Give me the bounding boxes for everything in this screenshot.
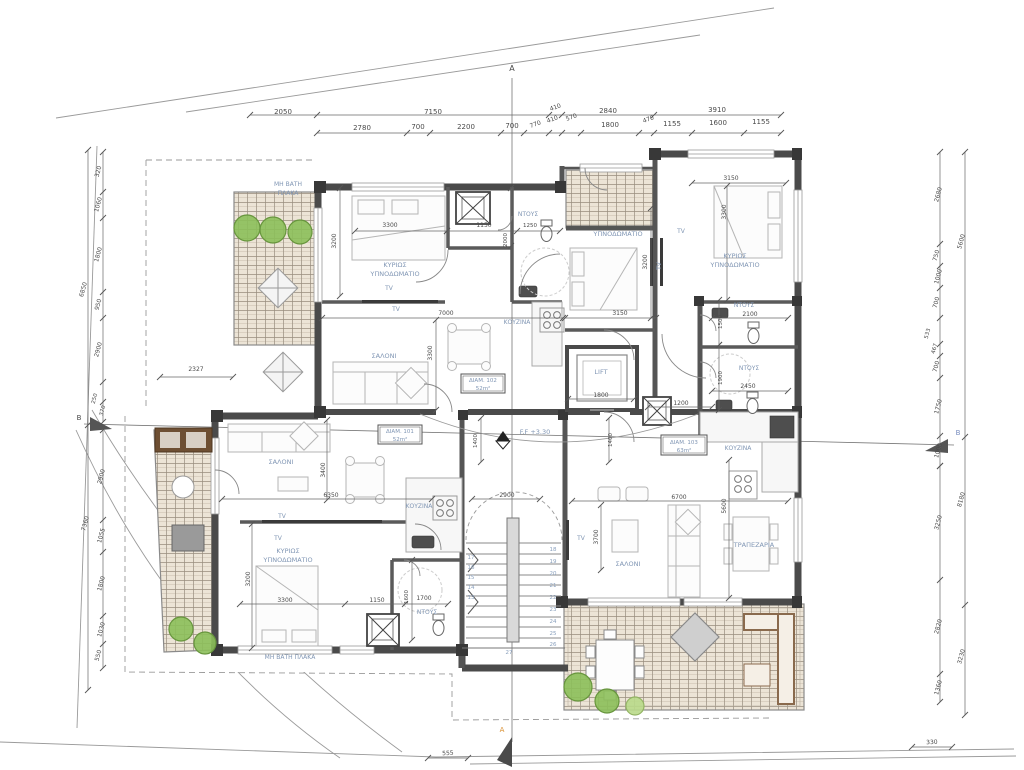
plan-label: 2680	[933, 186, 944, 203]
plan-label: 1150	[369, 597, 384, 604]
plan-label: 5600	[721, 498, 728, 513]
floor-plan-sheet: 2050715041028403910278070022007007704105…	[0, 0, 1024, 770]
plan-label: ΣΑΛΟΝΙ	[616, 560, 641, 568]
plan-label: 410	[549, 102, 562, 113]
plan-label: ΚΥΡΙΩΣ	[276, 547, 299, 555]
plan-label: 7360	[80, 515, 91, 532]
plan-label: 3150	[612, 310, 627, 317]
plan-label: 3300	[721, 204, 728, 219]
plan-label: 3200	[245, 571, 252, 586]
balcony-top-middle	[566, 170, 655, 228]
plan-label: 700	[505, 122, 518, 130]
plan-label: 1800	[93, 246, 104, 263]
plan-label: 7000	[438, 310, 453, 317]
plan-label: LIFT	[594, 368, 607, 376]
fridge	[770, 416, 794, 438]
plan-label: 2100	[742, 311, 757, 318]
plan-label: 1000	[933, 268, 944, 285]
plan-label: 2900	[96, 468, 107, 485]
floor-plan-drawing: 2050715041028403910278070022007007704105…	[0, 0, 1024, 770]
plan-label: 21	[550, 583, 557, 589]
plan-label: 320	[94, 165, 104, 178]
plan-label: 13	[468, 595, 475, 601]
plan-label: 1800	[593, 392, 608, 399]
plan-label: 2000	[503, 233, 509, 247]
plan-label: 63m²	[677, 447, 692, 454]
plan-label: TV	[391, 306, 401, 313]
plan-label: ΜΗ ΒΑΤΗ	[274, 181, 302, 188]
plan-label: ΝΤΟΥΣ	[734, 302, 755, 309]
plan-label: 27	[506, 650, 513, 656]
plan-label: 2780	[353, 124, 371, 132]
plan-label: 700	[411, 123, 424, 131]
plan-label: ΔΙΑΜ. 101	[386, 429, 414, 435]
plan-label: 370	[99, 404, 108, 416]
plan-label: 3200	[642, 254, 649, 269]
dining-apt102	[448, 324, 491, 371]
plan-label: 2900	[499, 492, 514, 499]
plan-label: 2840	[599, 107, 617, 115]
plan-label: 2327	[188, 366, 203, 373]
plan-label: 1900	[718, 371, 724, 385]
plan-label: B	[956, 429, 961, 437]
plan-label: ΝΤΟΥΣ	[417, 609, 438, 616]
plan-label: 467	[931, 342, 940, 354]
section-a-flag	[497, 737, 512, 767]
plan-label: 1600	[404, 590, 410, 604]
dining-apt101	[346, 457, 385, 504]
stair-rail	[507, 518, 519, 642]
plan-label: 533	[924, 327, 933, 339]
plan-label: 16	[468, 565, 475, 571]
plan-label: ΜΗ ΒΑΤΗ ΠΛΑΚΑ	[265, 654, 317, 661]
plan-label: TV	[273, 535, 283, 542]
plan-label: 770	[529, 119, 542, 130]
plan-label: ΥΠΝΟΔΩΜΑΤΙΟ	[592, 230, 642, 238]
plan-label: 15	[468, 575, 475, 581]
plan-label: 3300	[382, 222, 397, 229]
plan-label: TV	[384, 285, 394, 292]
plan-label: 1400	[608, 433, 614, 447]
plan-label: 1400	[473, 434, 479, 448]
bed-top-right	[714, 186, 782, 258]
plan-label: 3400	[320, 462, 327, 477]
plan-label: 52m²	[393, 436, 408, 443]
plan-label: A	[509, 64, 515, 73]
plan-label: ΥΠΝΟΔΩΜΑΤΙΟ	[262, 556, 312, 564]
plan-label: ΚΟΥΖΙΝΑ	[504, 319, 532, 326]
plan-label: TV	[656, 261, 663, 271]
plan-label: 1700	[416, 595, 431, 602]
plan-label: 330	[926, 739, 938, 747]
plan-label: 6350	[323, 492, 338, 499]
plan-label: ΚΟΥΖΙΝΑ	[725, 445, 753, 452]
plan-label: 3300	[427, 345, 434, 360]
sofa-apt102	[333, 362, 428, 404]
plan-label: TV	[277, 513, 287, 520]
plan-label: 1155	[752, 118, 770, 126]
plan-label: 2900	[93, 341, 104, 358]
plan-label: 18	[550, 547, 557, 553]
lift	[567, 347, 637, 410]
plan-label: ΔΙΑΜ. 103	[670, 440, 698, 446]
plan-label: TV	[576, 535, 586, 542]
plan-label: 23	[550, 607, 557, 613]
plan-label: A	[500, 726, 505, 734]
plan-label: 1055	[96, 527, 107, 544]
plan-label: 3700	[593, 529, 600, 544]
plan-label: 1360	[933, 679, 944, 696]
bed-middle-bedroom	[570, 248, 637, 310]
plan-label: 1150	[476, 222, 491, 229]
plan-label: 1500	[718, 315, 724, 329]
plan-label: 2820	[933, 618, 944, 635]
plan-label: ΥΠΝΟΔΩΜΑΤΙΟ	[369, 270, 419, 278]
plan-label: 1250	[523, 223, 537, 229]
plan-label: 3250	[933, 514, 944, 531]
plan-label: 14	[468, 585, 475, 591]
plan-label: 1155	[663, 120, 681, 128]
plan-label: 1800	[601, 121, 619, 129]
outdoor-unit	[172, 525, 204, 551]
kitchen-counter-apt103-side	[762, 442, 798, 492]
plan-label: 52m²	[476, 385, 491, 392]
plan-label: 570	[565, 112, 578, 123]
plan-label: ΤΡΑΠΕΖΑΡΙΑ	[733, 541, 775, 549]
plan-label: ΣΑΛΟΝΙ	[372, 352, 397, 360]
plan-label: 6700	[671, 494, 686, 501]
plan-label: 1800	[96, 575, 107, 592]
plan-label: 17	[468, 555, 475, 561]
plan-label: 950	[94, 298, 104, 311]
plan-label: B	[77, 414, 82, 422]
plan-label: 3910	[708, 106, 726, 114]
bed-apt101	[256, 566, 318, 646]
plan-label: 3300	[277, 597, 292, 604]
plan-label: 555	[442, 750, 454, 758]
plan-label: 1600	[709, 119, 727, 127]
plan-label: ΔΙΑΜ. 102	[469, 378, 497, 384]
plan-label: 20	[550, 571, 557, 577]
plan-label: 6850	[78, 281, 89, 298]
plan-label: 19	[550, 559, 557, 565]
plan-label: ΚΥΡΙΩΣ	[383, 261, 406, 269]
plan-label: 24	[550, 619, 557, 625]
plan-label: ΚΥΡΙΩΣ	[723, 252, 746, 260]
plan-label: 1200	[673, 400, 688, 407]
plan-label: 22	[550, 595, 557, 601]
plan-label: ΝΤΟΥΣ	[518, 211, 539, 218]
bed-apt102	[352, 196, 445, 260]
plan-label: 1030	[96, 621, 107, 638]
plan-label: ΚΟΥΖΙΝΑ	[406, 503, 434, 510]
plan-label: ΣΑΛΟΝΙ	[269, 458, 294, 466]
plan-label: 26	[550, 642, 557, 648]
plan-label: 7150	[424, 108, 442, 116]
plan-label: 250	[91, 392, 100, 404]
plan-label: 3200	[331, 233, 338, 248]
plan-label: 2450	[740, 383, 755, 390]
plan-label: 2200	[457, 123, 475, 131]
plan-label: 1750	[933, 398, 944, 415]
plan-label: TV	[676, 228, 686, 235]
plan-label: ΠΛΑΚΑ	[278, 190, 300, 197]
plan-label: 3150	[723, 175, 738, 182]
plan-label: 2050	[274, 108, 292, 116]
plan-label: ΝΤΟΥΣ	[739, 365, 760, 372]
plan-label: 550	[94, 649, 104, 662]
plan-label: 25	[550, 631, 557, 637]
plan-label: F.F +3.30	[520, 428, 551, 436]
plan-label: ΥΠΝΟΔΩΜΑΤΙΟ	[709, 261, 759, 269]
